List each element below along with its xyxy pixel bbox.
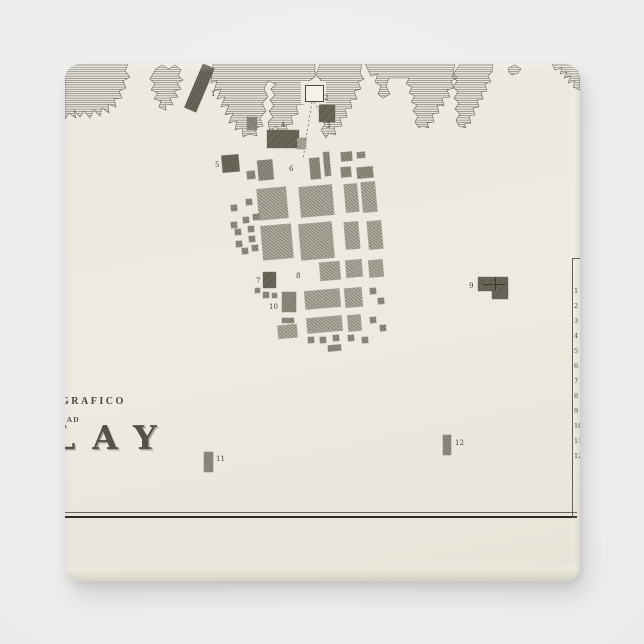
building	[320, 337, 327, 344]
building	[341, 152, 353, 162]
building	[443, 435, 451, 455]
legend-number-12: 12	[574, 453, 580, 460]
building	[248, 226, 255, 233]
building	[305, 85, 324, 102]
coast-blob	[365, 64, 457, 128]
building	[361, 181, 378, 212]
coast-blob	[150, 65, 183, 110]
map-label-5: 5	[215, 162, 219, 169]
building	[272, 293, 277, 298]
map-title-line-1: GRAFICO	[65, 396, 126, 407]
building	[249, 236, 256, 243]
map-border-line-thick	[65, 516, 577, 518]
building	[298, 222, 334, 261]
building	[328, 344, 341, 351]
building	[297, 138, 306, 149]
coast-blob	[508, 65, 521, 75]
building	[368, 259, 383, 277]
product-photo: { "scene": { "background_color": "#efeee…	[0, 0, 644, 644]
building	[333, 335, 340, 342]
coast-blob	[552, 64, 580, 90]
building	[370, 288, 377, 295]
map-label-12: 12	[455, 440, 464, 447]
legend-number-9: 9	[574, 408, 578, 415]
building	[261, 224, 294, 260]
map-label-8: 8	[296, 273, 300, 280]
coast-blob	[211, 64, 315, 137]
building	[319, 261, 340, 281]
building	[306, 316, 342, 334]
map-label-11: 11	[216, 456, 225, 463]
building	[252, 245, 259, 252]
legend-left-border	[572, 258, 573, 516]
building	[370, 317, 377, 324]
legend-number-1: 1	[574, 288, 578, 295]
legend-number-4: 4	[574, 333, 578, 340]
legend-number-7: 7	[574, 378, 578, 385]
building	[204, 452, 213, 472]
building	[263, 292, 269, 298]
building	[308, 337, 315, 344]
building	[367, 220, 383, 249]
building	[341, 167, 352, 178]
building	[246, 199, 253, 206]
map-label-1: 1	[211, 91, 215, 98]
cross-icon	[482, 284, 505, 285]
legend-number-11: 11	[574, 438, 580, 445]
map-label-4: 4	[281, 122, 285, 129]
building	[267, 130, 299, 148]
building	[345, 259, 362, 277]
legend-number-10: 10	[574, 423, 580, 430]
building	[236, 241, 243, 248]
cross-icon	[495, 277, 496, 291]
building	[344, 221, 360, 249]
coast-blob	[65, 64, 130, 119]
dashed-route-line	[303, 102, 312, 160]
building	[263, 272, 276, 288]
legend-number-6: 6	[574, 363, 578, 370]
building	[231, 222, 238, 229]
building	[221, 154, 239, 172]
building	[492, 291, 508, 299]
building	[347, 314, 361, 331]
building	[257, 187, 289, 220]
building	[247, 171, 256, 180]
building	[344, 183, 359, 212]
legend-number-3: 3	[574, 318, 578, 325]
map-label-10: 10	[269, 304, 278, 311]
building	[247, 117, 257, 130]
building	[348, 335, 355, 342]
building	[231, 205, 238, 212]
building	[235, 229, 242, 236]
building	[309, 158, 321, 180]
map-label-6: 6	[289, 166, 293, 173]
building	[299, 185, 334, 218]
legend-number-5: 5	[574, 348, 578, 355]
map-title-line-3: LAY	[65, 418, 174, 457]
map-label-3: 3	[326, 123, 330, 130]
building	[257, 159, 274, 180]
map-label-7: 7	[256, 278, 260, 285]
building	[344, 287, 363, 307]
legend-number-8: 8	[574, 393, 578, 400]
map-border-line-thin	[65, 512, 577, 513]
building	[357, 166, 374, 178]
building	[277, 324, 297, 339]
map-label-9: 9	[469, 283, 473, 290]
building	[362, 337, 369, 344]
legend-top-border	[572, 258, 580, 259]
map-label-2: 2	[324, 95, 328, 102]
map-print: GRAFICO DAD LAY 123456789101112123456789…	[65, 64, 580, 581]
building	[319, 105, 335, 122]
building	[380, 325, 387, 332]
legend-number-2: 2	[574, 303, 578, 310]
building	[253, 214, 260, 221]
building	[242, 248, 249, 255]
building	[243, 217, 250, 224]
coast-blob	[452, 64, 493, 128]
building	[282, 292, 296, 312]
building	[255, 288, 260, 293]
map-magnet: GRAFICO DAD LAY 123456789101112123456789…	[65, 64, 580, 581]
building	[282, 318, 294, 323]
building	[304, 289, 340, 310]
building	[378, 298, 385, 305]
building	[357, 152, 365, 159]
